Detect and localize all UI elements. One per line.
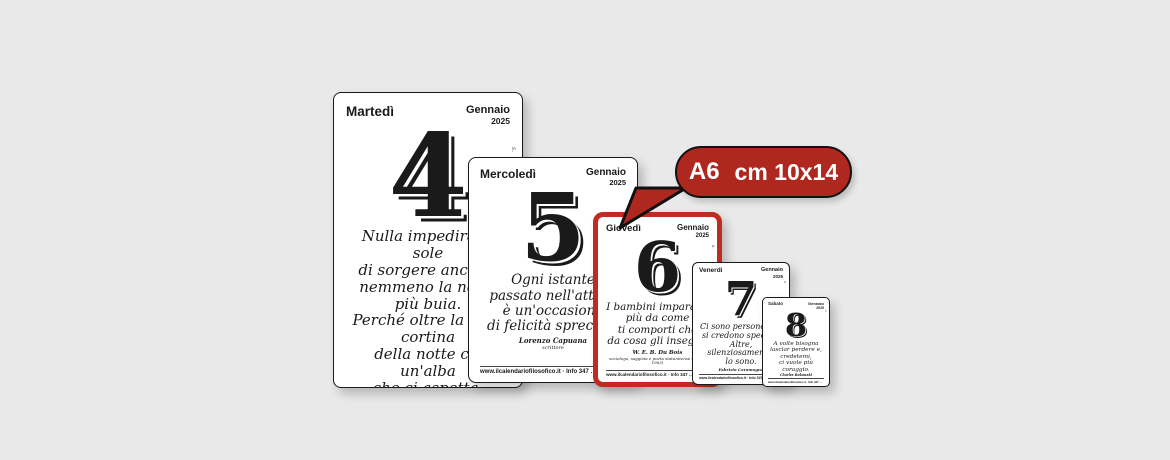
dimensions-label: cm 10x14 (735, 159, 839, 186)
bubble-tail (616, 186, 688, 230)
quote-text: A volte bisogna lasciar perdere e, crede… (768, 341, 824, 373)
month-year-block: Gennaio 2025 (466, 105, 510, 126)
month-year-block: Gennaio 2025 (586, 168, 626, 187)
calendar-pages-composition: Martedì Gennaio 2025 s. 4 Nulla impedirà… (0, 0, 1170, 460)
saint-note: s. (783, 281, 787, 284)
year-label: 2025 (761, 275, 783, 280)
saint-note: s. (824, 310, 828, 313)
year-label: 2025 (466, 117, 510, 126)
day-number: 8 (768, 312, 824, 339)
year-label: 2025 (808, 307, 824, 311)
month-year-block: Gennaio 2025 (761, 268, 783, 279)
month-label: Gennaio (761, 267, 783, 273)
size-callout-bubble: A6 cm 10x14 (675, 146, 852, 198)
paper-size-label: A6 (689, 158, 720, 186)
day-name-label: Venerdì (699, 268, 722, 275)
page-footer: www.ilcalendariofilosofico.it · Info 347… (768, 378, 824, 383)
calendar-page-sabato-8: Sabato Gennaio 2025 s. 8 A volte bisogna… (762, 297, 830, 387)
month-label: Gennaio (466, 104, 510, 116)
year-label: 2025 (677, 233, 709, 239)
month-label: Gennaio (586, 167, 626, 178)
month-year-block: Gennaio 2025 (808, 302, 824, 311)
saint-note: s. (710, 245, 715, 249)
day-name-label: Sabato (768, 302, 783, 307)
saint-note: s. (510, 147, 517, 152)
day-name-label: Martedì (346, 105, 394, 119)
